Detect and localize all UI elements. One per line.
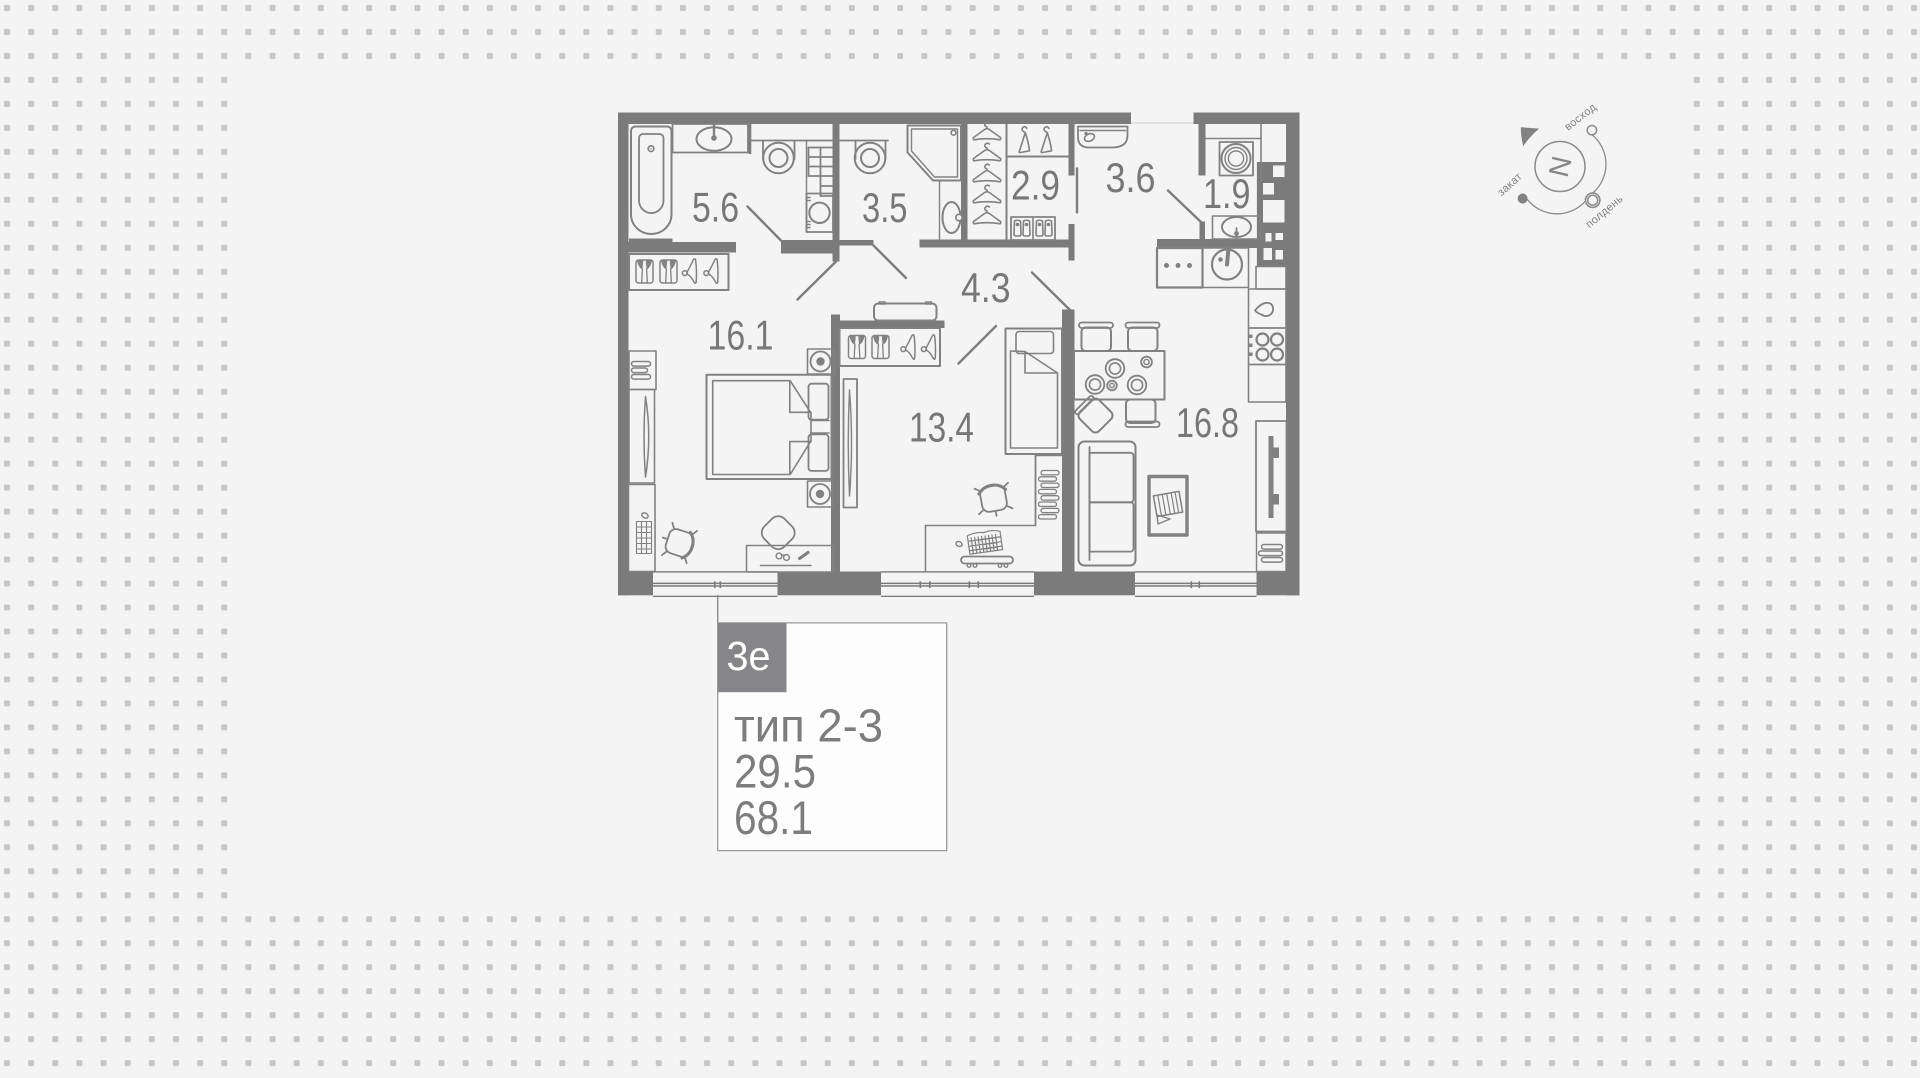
svg-text:68.1: 68.1 xyxy=(734,791,813,844)
svg-text:3е: 3е xyxy=(727,633,771,679)
svg-text:4.3: 4.3 xyxy=(961,264,1011,311)
svg-text:3.5: 3.5 xyxy=(862,184,908,231)
svg-text:3.6: 3.6 xyxy=(1106,154,1156,201)
svg-text:13.4: 13.4 xyxy=(909,404,974,451)
svg-text:16.8: 16.8 xyxy=(1176,399,1239,446)
svg-text:16.1: 16.1 xyxy=(708,312,774,359)
svg-text:2.9: 2.9 xyxy=(1011,162,1060,209)
svg-text:5.6: 5.6 xyxy=(692,184,739,231)
svg-text:1.9: 1.9 xyxy=(1203,170,1251,217)
svg-text:29.5: 29.5 xyxy=(734,745,816,798)
